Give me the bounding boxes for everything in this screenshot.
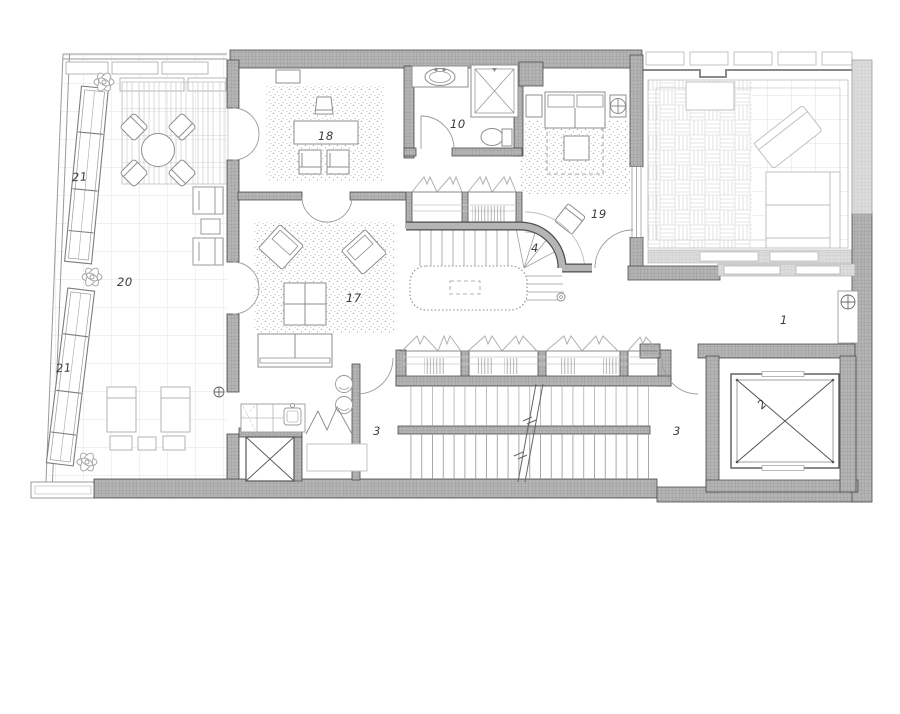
hall-rug xyxy=(307,444,367,471)
survey-marker-icon xyxy=(214,387,224,397)
wall-cabinet xyxy=(276,70,300,83)
handrail-scroll xyxy=(557,293,565,301)
terrace-planter-box xyxy=(31,482,95,498)
floor-plan-drawing: 1 2 3 3 4 10 17 18 19 20 21 21 xyxy=(0,0,900,714)
corridor-1 xyxy=(838,291,858,343)
faucet xyxy=(291,404,295,408)
room-label-stair: 4 xyxy=(531,241,539,255)
wardrobe-bifold xyxy=(468,177,516,192)
window xyxy=(724,266,780,274)
door-swing xyxy=(595,230,633,268)
stair-upper-run xyxy=(404,386,650,426)
curved-wall xyxy=(406,226,592,268)
roof-room-top-wall xyxy=(643,70,855,77)
room-label-terrace: 20 xyxy=(117,275,133,289)
elevator-door xyxy=(762,372,804,377)
bedroom-chair xyxy=(555,204,586,235)
closet-bifold-doors xyxy=(402,336,658,351)
room-label-living: 17 xyxy=(346,291,362,305)
shower xyxy=(471,65,518,117)
roof-room-skylights xyxy=(646,52,852,65)
stair-landing-rail xyxy=(410,266,527,310)
room-label-landing-left: 3 xyxy=(373,424,381,438)
room-label-bedroom: 19 xyxy=(591,207,607,221)
curved-stair-4 xyxy=(406,177,592,310)
double-door-swing xyxy=(302,197,352,222)
room-label-study: 18 xyxy=(318,129,334,143)
room-label-planter-lower: 21 xyxy=(56,360,73,375)
stool xyxy=(336,397,353,414)
survey-marker-icon xyxy=(841,295,855,309)
roof-table xyxy=(686,82,734,110)
nightstand xyxy=(526,95,542,117)
survey-marker-icon xyxy=(611,99,626,114)
window xyxy=(770,252,818,261)
round-table xyxy=(142,134,175,167)
window xyxy=(700,252,758,261)
wardrobe-bifold xyxy=(412,177,462,192)
roof-room xyxy=(643,52,855,263)
desk-chair xyxy=(315,97,333,114)
service-shaft xyxy=(246,437,294,481)
room-label-planter-upper: 21 xyxy=(72,169,89,184)
room-label-bathroom: 10 xyxy=(450,117,466,131)
window xyxy=(796,266,840,274)
door-swing xyxy=(357,358,393,394)
coffee-table xyxy=(284,283,326,325)
elevator-door xyxy=(762,466,804,471)
room-label-corridor: 1 xyxy=(780,313,788,327)
wall-bottom xyxy=(94,479,657,498)
floor-plan-canvas: 1 2 3 3 4 10 17 18 19 20 21 21 xyxy=(0,0,900,714)
hanger-rails xyxy=(424,358,619,374)
french-door-swing xyxy=(233,108,259,160)
bathroom-10 xyxy=(412,65,518,149)
room-label-landing-right: 3 xyxy=(673,424,681,438)
stool xyxy=(336,376,353,393)
sofa xyxy=(258,334,332,367)
hanger-rail xyxy=(472,206,506,222)
elevator-2 xyxy=(731,372,839,471)
bedroom-window xyxy=(630,167,643,237)
wall-top-main xyxy=(230,50,642,68)
column xyxy=(519,62,543,86)
ottoman xyxy=(564,136,589,160)
roof-sofa xyxy=(766,172,840,248)
toilet xyxy=(481,129,512,147)
